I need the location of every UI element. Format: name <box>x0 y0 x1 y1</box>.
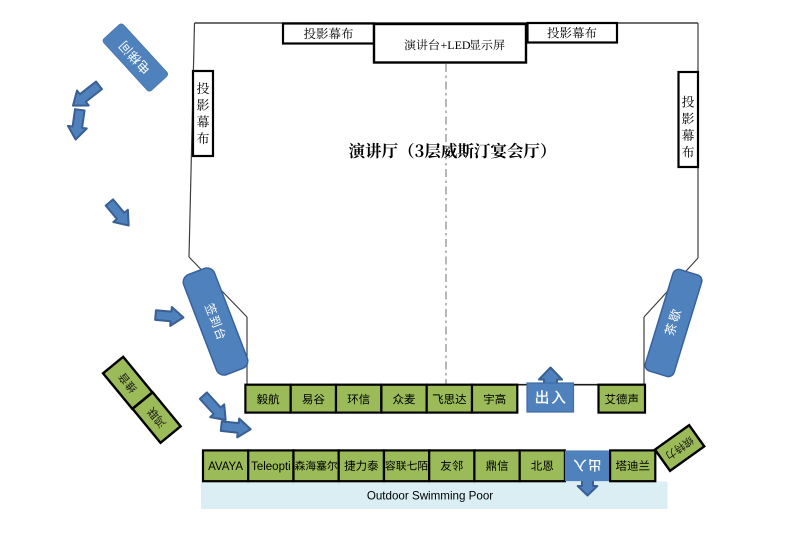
svg-text:Teleopti: Teleopti <box>251 461 291 473</box>
svg-text:+LED: +LED <box>441 38 471 52</box>
svg-text:AVAYA: AVAYA <box>208 461 243 473</box>
svg-text:Outdoor Swimming Poor: Outdoor Swimming Poor <box>367 490 493 503</box>
